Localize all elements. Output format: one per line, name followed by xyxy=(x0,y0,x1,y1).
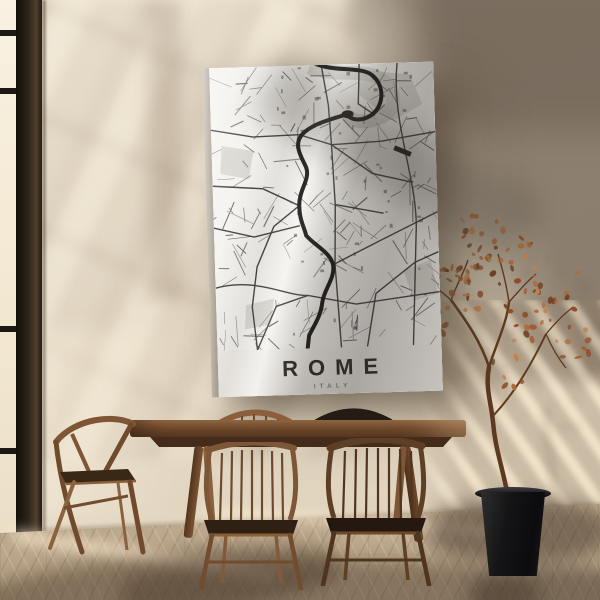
wall-soft-shadow-column xyxy=(138,0,190,300)
dining-table-top xyxy=(130,420,466,437)
window-mullion xyxy=(0,88,16,94)
window-mullion xyxy=(0,30,16,36)
wall-shadow-top-corner xyxy=(420,0,600,130)
rome-map-graphic xyxy=(209,62,441,352)
dining-room-scene: ROME ITALY xyxy=(0,0,600,600)
window-mullion xyxy=(0,326,16,332)
plant-pot xyxy=(478,492,548,576)
poster-title: ROME xyxy=(218,352,443,385)
window-mullion xyxy=(0,448,16,454)
canvas-face: ROME ITALY xyxy=(209,62,443,398)
map-poster: ROME ITALY xyxy=(202,62,443,398)
chair-near-left xyxy=(196,442,306,590)
poster-title-band: ROME ITALY xyxy=(218,345,443,398)
chair-near-right xyxy=(318,438,434,586)
chair-left xyxy=(30,410,152,558)
